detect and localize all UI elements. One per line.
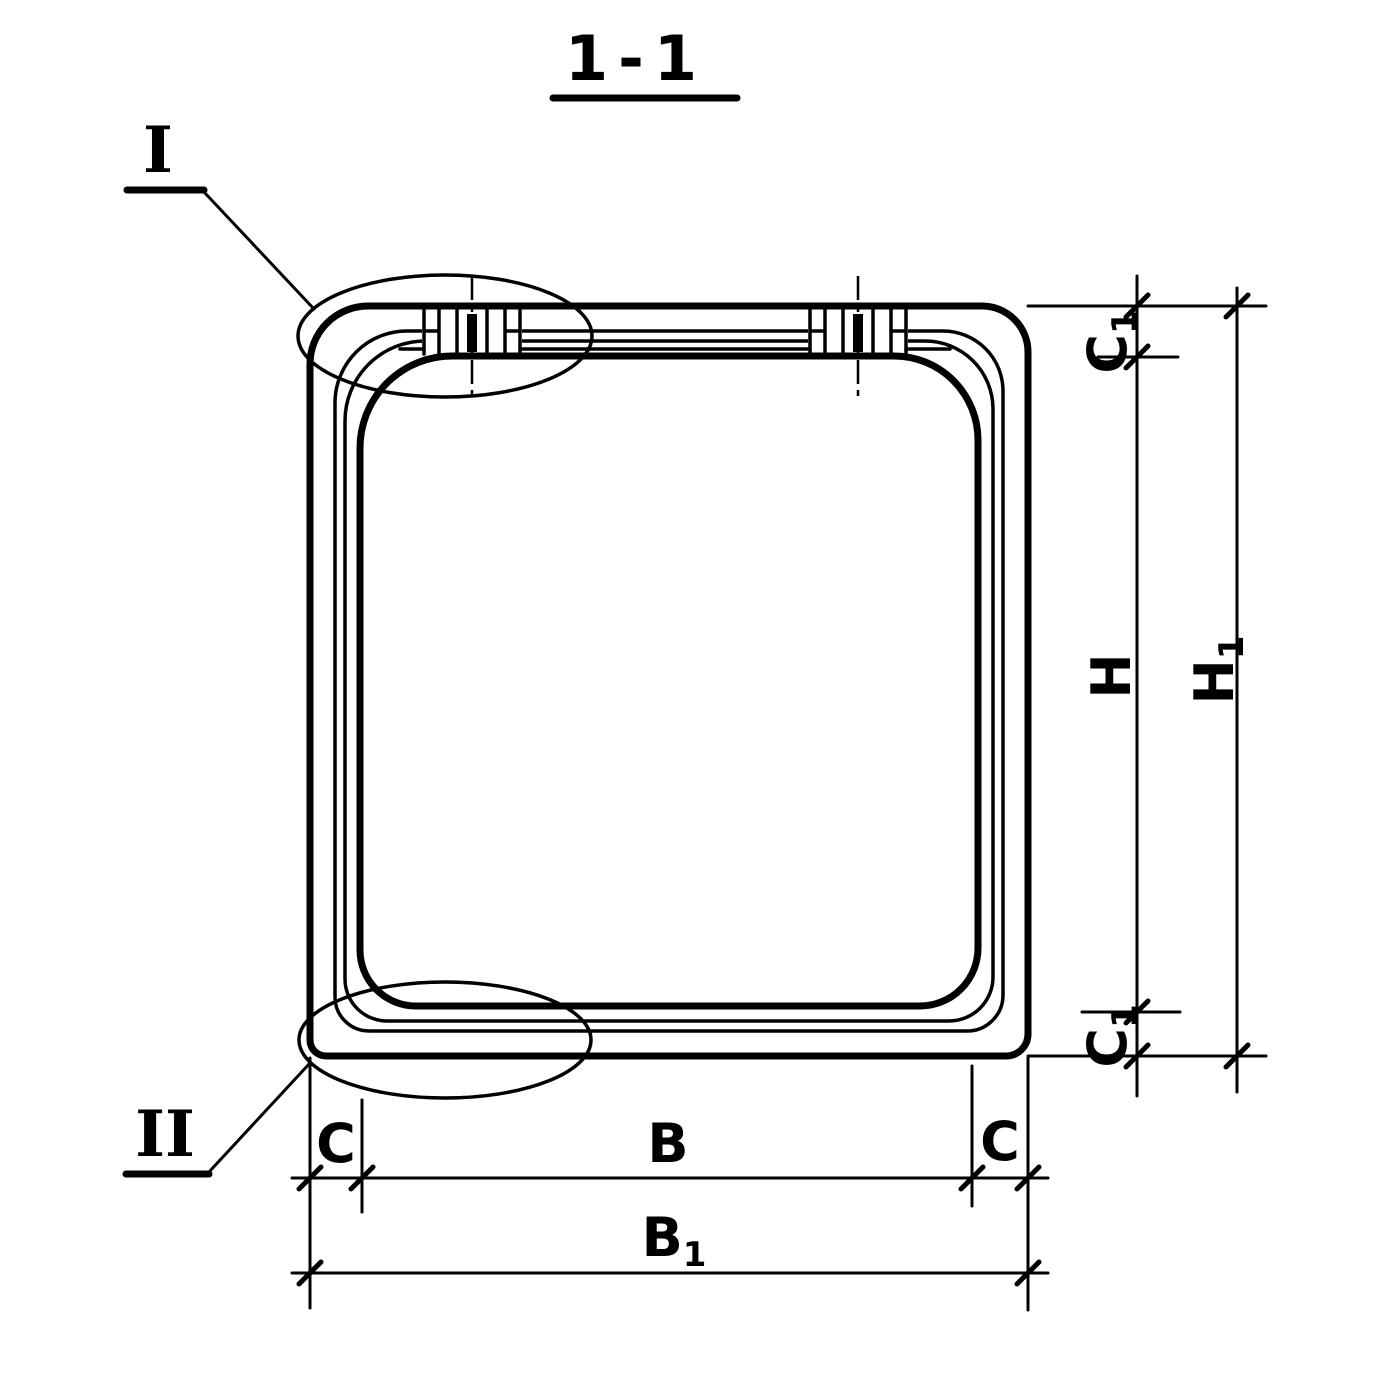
dim-label-b: B xyxy=(647,1112,688,1175)
dim-label-h: H xyxy=(1080,653,1143,698)
section-title: 1-1 xyxy=(565,22,707,95)
dim-label-c-left: C xyxy=(316,1112,356,1175)
drawing-sheet: 1-1 I II xyxy=(0,0,1374,1379)
detail-label-II: II xyxy=(135,1097,195,1172)
detail-label-I: I xyxy=(143,113,173,188)
dim-label-c-right: C xyxy=(980,1110,1020,1173)
section-drawing: 1-1 I II xyxy=(0,0,1374,1379)
